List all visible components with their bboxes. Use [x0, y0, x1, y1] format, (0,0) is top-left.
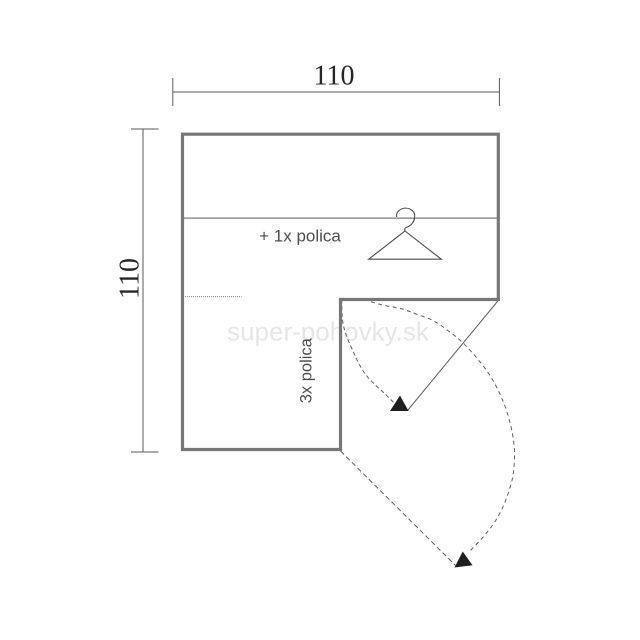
svg-text:110: 110 [314, 61, 355, 92]
svg-text:super-pohovky.sk: super-pohovky.sk [227, 317, 430, 347]
svg-text:3x polica: 3x polica [298, 337, 316, 403]
svg-text:+ 1x polica: + 1x polica [259, 227, 341, 246]
svg-text:110: 110 [115, 258, 146, 299]
